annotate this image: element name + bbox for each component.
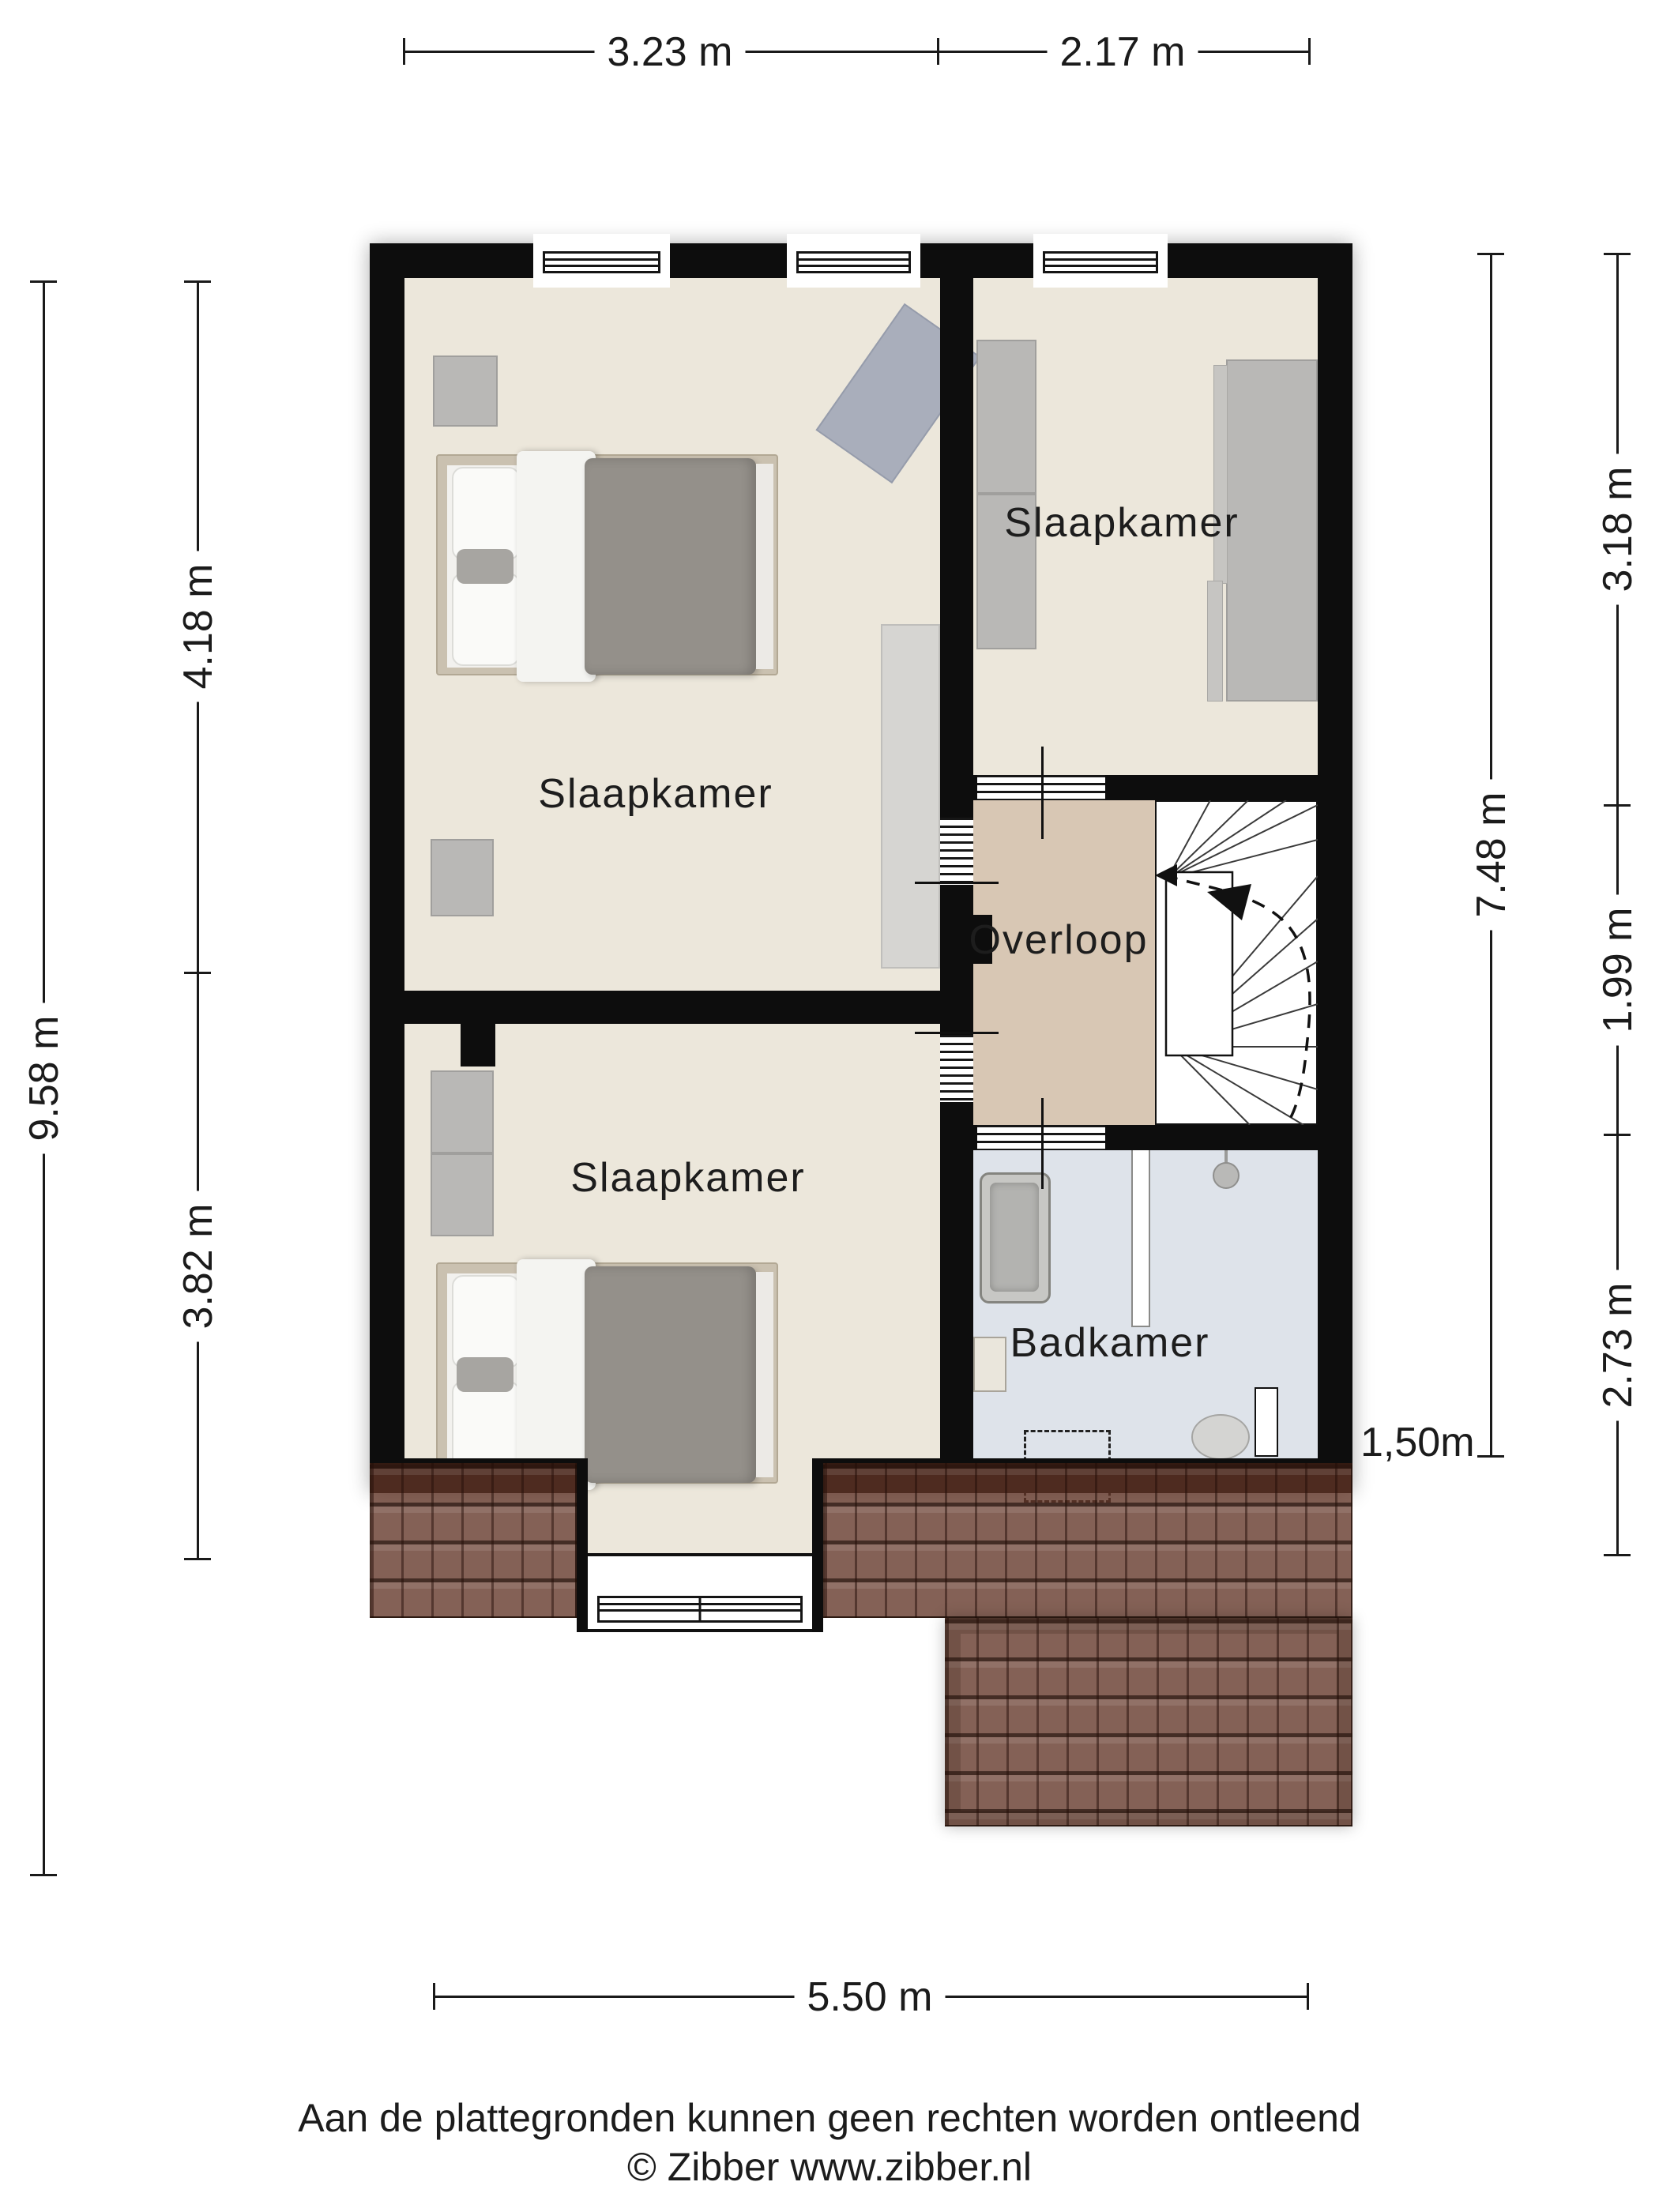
- room-label-bedroom-top-left: Slaapkamer: [538, 770, 773, 818]
- dim-tick: [937, 38, 939, 65]
- dim-label-left-inner-1: 4.18 m: [173, 551, 224, 702]
- dormer-wall-left: [577, 1458, 588, 1632]
- wall-left: [370, 243, 404, 1493]
- footer-copyright: © Zibber www.zibber.nl: [627, 2144, 1032, 2190]
- bed-sheet: [517, 451, 596, 682]
- shower-head-icon: [1213, 1162, 1240, 1189]
- dim-tick: [1477, 253, 1504, 255]
- glazing-mullion: [699, 1598, 702, 1620]
- dim-tick: [1604, 1554, 1631, 1556]
- radiator: [1131, 1128, 1150, 1327]
- dim-label-right-inner: 7.48 m: [1466, 780, 1517, 931]
- roof-clearance-label: 1,50m: [1360, 1419, 1475, 1466]
- dim-tick: [1477, 1455, 1504, 1458]
- bolster-pillow: [457, 1357, 513, 1392]
- floorplan-page: Slaapkamer Slaapkamer Slaapkamer Overloo…: [0, 0, 1659, 2212]
- dresser: [433, 355, 498, 427]
- bed: [1226, 359, 1318, 702]
- wall-stub: [461, 1024, 495, 1066]
- room-label-landing: Overloop: [969, 916, 1149, 964]
- dormer-sill-line: [588, 1629, 812, 1632]
- dim-tick: [1604, 1134, 1631, 1136]
- dim-tick: [30, 1874, 57, 1876]
- dim-tick: [184, 972, 211, 974]
- dormer-wall-right: [812, 1458, 823, 1632]
- door-leaf: [1255, 1387, 1278, 1457]
- dormer-window-glazing: [597, 1596, 803, 1623]
- dim-tick: [433, 1983, 435, 2010]
- staircase: [1155, 800, 1318, 1125]
- wall-right: [1318, 243, 1352, 1493]
- bed-sheet: [517, 1259, 596, 1490]
- bolster-pillow: [457, 549, 513, 584]
- dresser: [431, 1070, 494, 1153]
- roof-band-left: [370, 1463, 577, 1618]
- dim-tick: [30, 280, 57, 283]
- dim-tick: [184, 280, 211, 283]
- door-opening-landing-bedroom3: [940, 1035, 973, 1102]
- dim-tick: [184, 1558, 211, 1560]
- dresser: [431, 1153, 494, 1236]
- toilet: [1191, 1414, 1250, 1460]
- dim-tick: [403, 38, 405, 65]
- dim-label-right-outer-1: 3.18 m: [1593, 454, 1643, 605]
- bathtub: [980, 1172, 1051, 1303]
- footer-disclaimer: Aan de plattegronden kunnen geen rechten…: [298, 2095, 1361, 2141]
- door-tick: [1041, 747, 1044, 839]
- room-label-bathroom: Badkamer: [1010, 1319, 1210, 1367]
- dim-label-left-outer: 9.58 m: [19, 1003, 70, 1154]
- room-label-bedroom-bottom-left: Slaapkamer: [570, 1154, 805, 1202]
- pillow: [452, 467, 520, 560]
- bathtub-inner: [990, 1183, 1039, 1292]
- dim-label-top-1: 3.23 m: [595, 27, 746, 77]
- dim-line-left-inner: [197, 280, 199, 1560]
- roof-extension: [945, 1618, 1352, 1826]
- door-tick: [915, 882, 999, 884]
- duvet: [585, 1266, 756, 1483]
- duvet: [585, 458, 756, 675]
- bed-rail: [1213, 365, 1228, 584]
- dim-label-right-outer-3: 2.73 m: [1593, 1270, 1643, 1421]
- mattress-edge: [756, 1272, 773, 1477]
- dim-tick: [1308, 38, 1311, 65]
- pillow: [452, 573, 520, 666]
- bath-cabinet: [973, 1337, 1006, 1392]
- pillow: [452, 1275, 520, 1368]
- dim-label-left-inner-2: 3.82 m: [173, 1191, 224, 1342]
- double-bed: [436, 1262, 778, 1484]
- mattress-edge: [756, 464, 773, 669]
- dim-label-top-2: 2.17 m: [1048, 27, 1198, 77]
- double-bed: [436, 454, 778, 675]
- dim-tick: [1307, 1983, 1309, 2010]
- window-glazing: [1043, 251, 1158, 273]
- wardrobe: [881, 624, 940, 969]
- wardrobe: [976, 340, 1036, 494]
- door-opening-landing-bedroom1: [940, 818, 973, 885]
- window-glazing: [543, 251, 660, 273]
- dim-label-bottom: 5.50 m: [795, 1972, 946, 2022]
- door-tick: [915, 1032, 999, 1034]
- dormer-sill-line: [588, 1553, 812, 1556]
- roof-band-right: [823, 1463, 1352, 1618]
- door-tick: [1041, 1098, 1044, 1189]
- window-glazing: [796, 251, 911, 273]
- dresser: [431, 839, 494, 916]
- wall-between-bedrooms: [404, 991, 940, 1024]
- dim-tick: [1604, 253, 1631, 255]
- dim-tick: [1604, 804, 1631, 807]
- bed-rail: [1207, 581, 1223, 702]
- dim-label-right-outer-2: 1.99 m: [1593, 895, 1643, 1046]
- room-label-bedroom-top-right: Slaapkamer: [1004, 499, 1239, 547]
